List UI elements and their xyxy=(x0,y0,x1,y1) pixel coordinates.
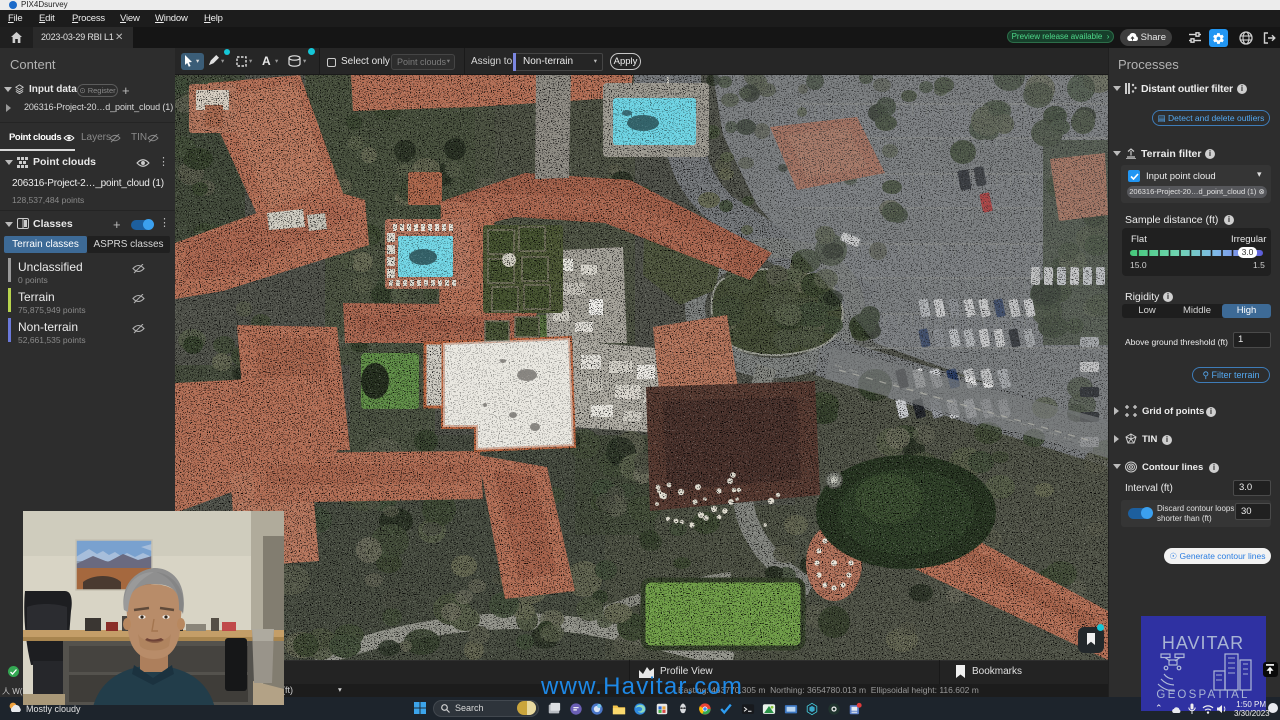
svg-text:HAVITAR: HAVITAR xyxy=(1162,633,1244,653)
